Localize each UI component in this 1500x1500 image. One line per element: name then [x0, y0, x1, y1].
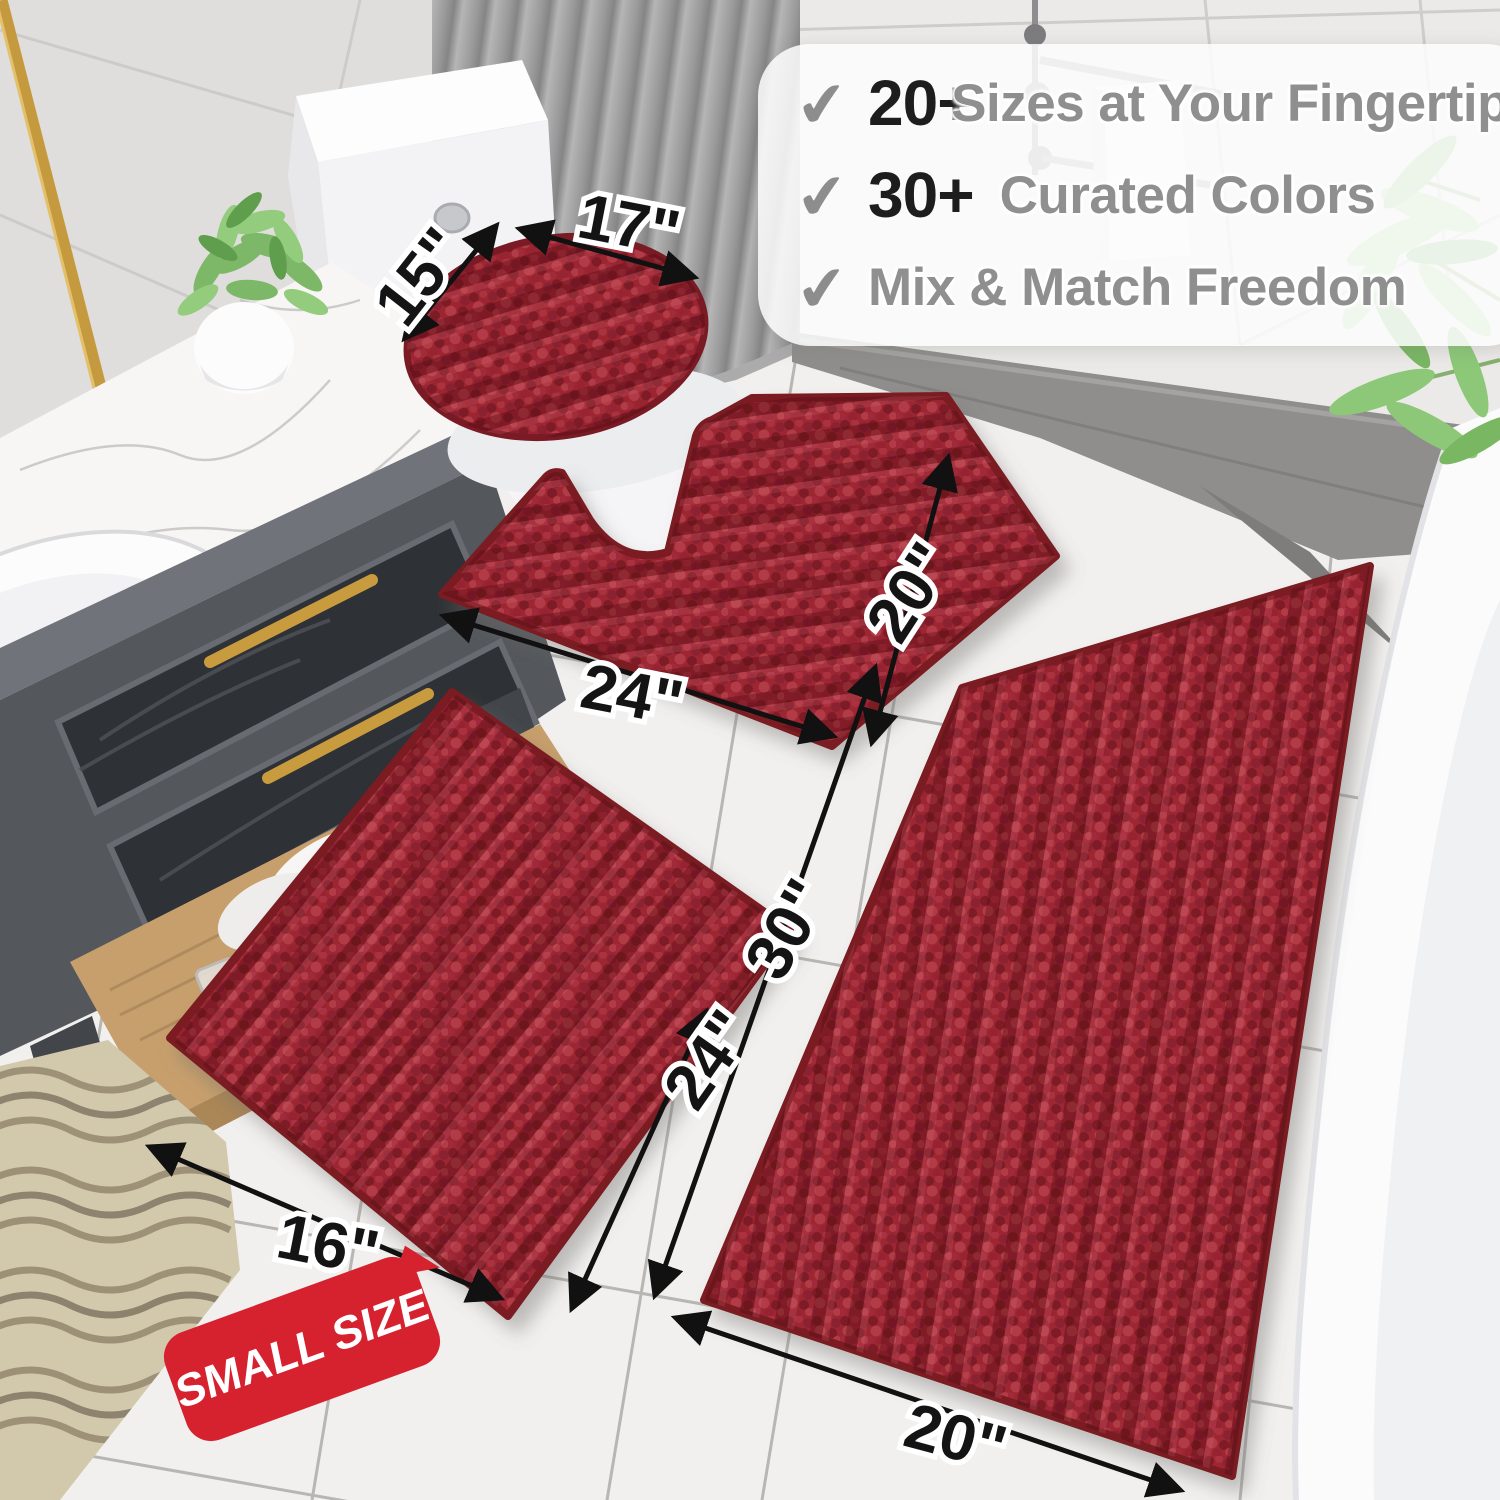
check-icon: ✔ — [792, 247, 871, 327]
feature-count: 20+ — [868, 66, 925, 140]
feature-row: ✔ 30+ Curated Colors — [796, 156, 1500, 234]
flush-button — [435, 204, 469, 232]
feature-row: ✔ 20+ Sizes at Your Fingertips — [796, 64, 1500, 142]
feature-panel: ✔ 20+ Sizes at Your Fingertips ✔ 30+ Cur… — [758, 44, 1500, 346]
feature-row: ✔ Mix & Match Freedom — [796, 248, 1500, 326]
feature-text: Sizes at Your Fingertips — [951, 73, 1500, 134]
feature-text: Mix & Match Freedom — [868, 257, 1406, 318]
check-icon: ✔ — [792, 63, 871, 143]
feature-text: Curated Colors — [1000, 165, 1376, 226]
check-icon: ✔ — [792, 155, 871, 235]
feature-count: 30+ — [868, 158, 974, 232]
